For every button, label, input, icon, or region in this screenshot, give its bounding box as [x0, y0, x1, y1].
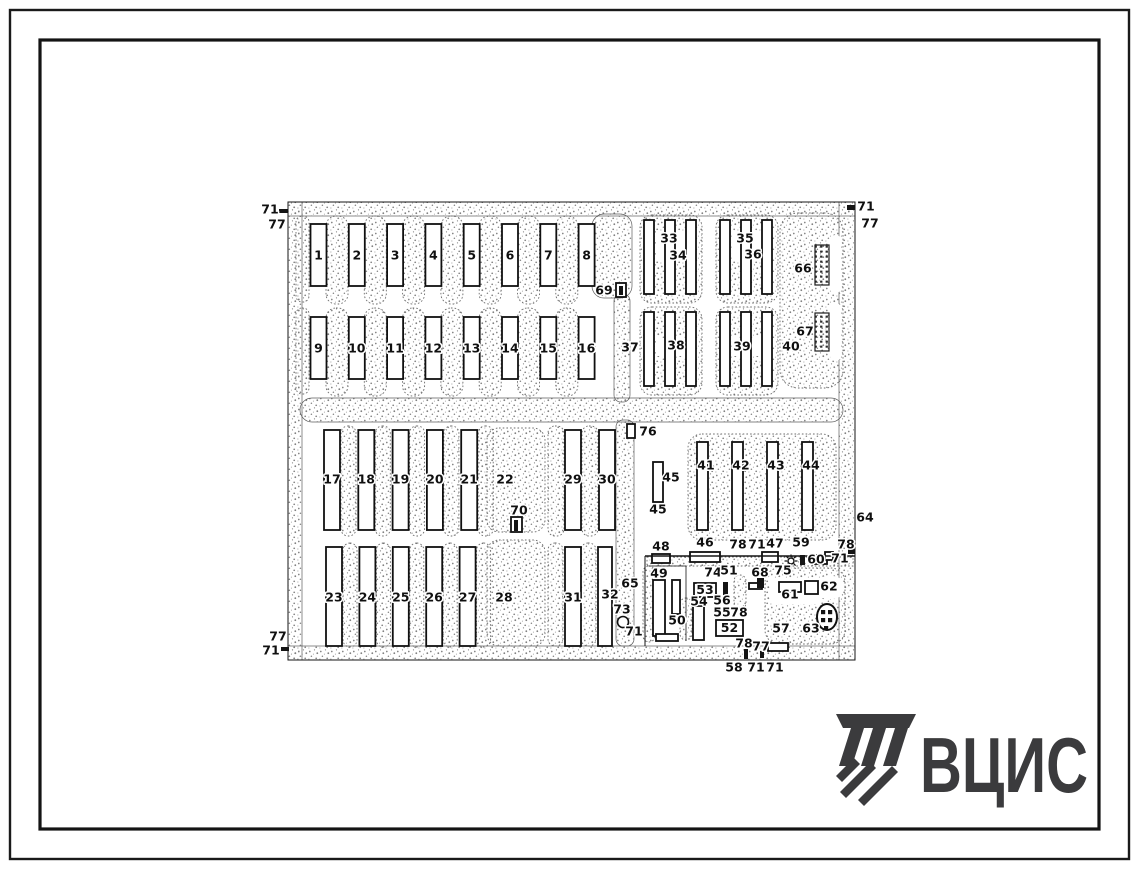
building-number: 14 — [501, 341, 519, 356]
building — [690, 552, 720, 562]
plan-label: 57 — [772, 621, 789, 636]
plan-label: 78 — [735, 636, 752, 651]
building — [762, 552, 778, 562]
plan-label: 45 — [649, 502, 666, 517]
marker — [847, 205, 855, 210]
marker — [514, 520, 518, 531]
marker — [757, 578, 764, 588]
building-41 — [697, 442, 708, 530]
stippled-block — [296, 308, 309, 394]
building — [805, 581, 818, 594]
plan-label: 38 — [667, 338, 684, 353]
plan-label: 51 — [720, 563, 737, 578]
plan-label: 61 — [781, 587, 798, 602]
paddock — [443, 543, 457, 647]
building-44 — [802, 442, 813, 530]
plan-label: 71 — [766, 660, 783, 675]
building — [644, 312, 654, 386]
plan-label: 71 — [747, 660, 764, 675]
plan-label: 73 — [613, 602, 630, 617]
plan-label: 77 — [861, 216, 878, 231]
paddock — [518, 216, 540, 304]
building — [672, 580, 680, 614]
building-number: 2 — [352, 248, 361, 263]
paddock — [441, 216, 463, 304]
building — [768, 643, 788, 651]
plan-label: 64 — [856, 510, 874, 525]
plan-label: 48 — [652, 539, 669, 554]
paddock — [548, 426, 564, 536]
building — [720, 220, 730, 294]
building-number: 31 — [564, 590, 581, 605]
paddock — [477, 543, 491, 647]
paddock — [326, 216, 348, 304]
plan-label: 77 — [268, 217, 285, 232]
building — [644, 220, 654, 294]
building-number: 13 — [463, 341, 480, 356]
paddock — [582, 426, 598, 536]
building-number: 3 — [391, 248, 400, 263]
building-number: 12 — [425, 341, 442, 356]
plan-label: 32 — [601, 587, 618, 602]
plan-label: 65 — [621, 576, 638, 591]
building — [720, 312, 730, 386]
paddock — [478, 426, 493, 536]
building-number: 23 — [325, 590, 342, 605]
plan-label: 49 — [650, 566, 667, 581]
marker — [744, 649, 748, 659]
building-number: 1 — [314, 248, 323, 263]
paddock — [410, 543, 424, 647]
plan-label: 77 — [752, 639, 769, 654]
plan-label: 46 — [696, 535, 714, 550]
building-number: 6 — [506, 248, 515, 263]
paddock — [479, 308, 501, 396]
plan-label: 71 — [262, 643, 279, 658]
plan-label: 47 — [766, 536, 783, 551]
building-number: 20 — [426, 472, 444, 487]
paddock — [556, 216, 578, 304]
building-number: 8 — [582, 248, 591, 263]
paddock — [364, 308, 386, 396]
building-number: 11 — [386, 341, 403, 356]
marker — [279, 209, 288, 213]
plan-label: 78 — [729, 537, 746, 552]
paddock — [479, 216, 501, 304]
plan-label: 39 — [733, 339, 750, 354]
plan-label: 78 — [730, 605, 747, 620]
road — [288, 202, 855, 216]
tank-structure — [817, 604, 837, 630]
paddock — [518, 308, 540, 396]
building — [693, 606, 704, 640]
plan-label: 76 — [639, 424, 657, 439]
plan-label: 40 — [782, 339, 800, 354]
paddock — [403, 308, 425, 396]
logo-text: ВЦИС — [920, 721, 1088, 809]
building-number: 30 — [598, 472, 616, 487]
site-plan-drawing: 1234567891011121314151617181920212930232… — [0, 0, 1139, 869]
plan-label: 62 — [820, 579, 837, 594]
plan-label: 59 — [792, 535, 809, 550]
plan-label: 37 — [621, 340, 638, 355]
hatched-building — [815, 245, 829, 285]
paddock — [441, 308, 463, 396]
logo-icon — [836, 714, 916, 806]
drawing-sheet: 1234567891011121314151617181920212930232… — [0, 0, 1139, 869]
plan-label: 45 — [662, 470, 679, 485]
paddock — [548, 543, 563, 646]
plan-label: 71 — [857, 199, 874, 214]
plan-label: 28 — [495, 590, 512, 605]
building-number: 27 — [459, 590, 476, 605]
building — [656, 634, 678, 641]
plan-label: 63 — [802, 621, 819, 636]
plan-label: 71 — [625, 624, 642, 639]
plan-label: 75 — [774, 563, 791, 578]
building-number: 24 — [359, 590, 377, 605]
building — [686, 220, 696, 294]
paddock — [556, 308, 578, 396]
plan-label: 77 — [269, 629, 286, 644]
paddock — [581, 543, 596, 646]
plan-label: 58 — [725, 660, 742, 675]
building-number: 5 — [467, 248, 476, 263]
plan-label: 67 — [796, 324, 813, 339]
building-43 — [767, 442, 778, 530]
building-number: 7 — [544, 248, 553, 263]
stippled-block — [296, 216, 309, 302]
building — [653, 580, 665, 636]
building-number: 43 — [767, 458, 784, 473]
building-number: 25 — [392, 590, 409, 605]
paddock — [403, 216, 425, 304]
building-number: 18 — [358, 472, 375, 487]
building — [762, 312, 772, 386]
building-number: 21 — [460, 472, 477, 487]
paddock — [364, 216, 386, 304]
building-number: 44 — [802, 458, 820, 473]
building-number: 15 — [540, 341, 557, 356]
hatched-building — [815, 313, 829, 351]
building-number: 29 — [564, 472, 581, 487]
plan-label: 66 — [794, 261, 812, 276]
paddock — [341, 426, 356, 536]
plan-label: 70 — [510, 503, 528, 518]
paddock — [343, 543, 357, 647]
plan-label: 54 — [690, 594, 708, 609]
building-number: 16 — [578, 341, 596, 356]
plan-label: 78 — [837, 537, 854, 552]
white-area — [830, 303, 841, 361]
building-number: 26 — [425, 590, 443, 605]
logo — [836, 714, 916, 806]
building-number: 10 — [348, 341, 366, 356]
building-42 — [732, 442, 743, 530]
building-number: 42 — [732, 458, 749, 473]
paddock — [410, 426, 425, 536]
building — [762, 220, 772, 294]
plan-label: 34 — [669, 248, 687, 263]
plan-label: 71 — [748, 537, 765, 552]
building-number: 41 — [697, 458, 714, 473]
plan-label: 35 — [736, 231, 753, 246]
paddock — [375, 426, 390, 536]
plan-label: 69 — [595, 283, 612, 298]
plan-label: 60 — [807, 552, 825, 567]
plan-label: 71 — [261, 202, 278, 217]
paddock — [376, 543, 390, 647]
plan-label: 22 — [496, 472, 513, 487]
marker — [619, 286, 623, 295]
road — [300, 398, 843, 422]
plan-label: 36 — [744, 247, 762, 262]
building-number: 17 — [323, 472, 340, 487]
building-number: 4 — [429, 248, 438, 263]
plan-label: 33 — [660, 231, 677, 246]
building — [627, 424, 635, 438]
paddock — [326, 308, 348, 396]
plan-label: 68 — [751, 565, 768, 580]
building — [686, 312, 696, 386]
building-number: 19 — [392, 472, 409, 487]
paddock — [444, 426, 459, 536]
plan-label: 71 — [831, 551, 848, 566]
plan-label: 55 — [713, 605, 730, 620]
building-number: 52 — [721, 620, 738, 635]
white-area — [830, 235, 841, 293]
plan-label: 50 — [668, 613, 686, 628]
building-number: 9 — [314, 341, 323, 356]
